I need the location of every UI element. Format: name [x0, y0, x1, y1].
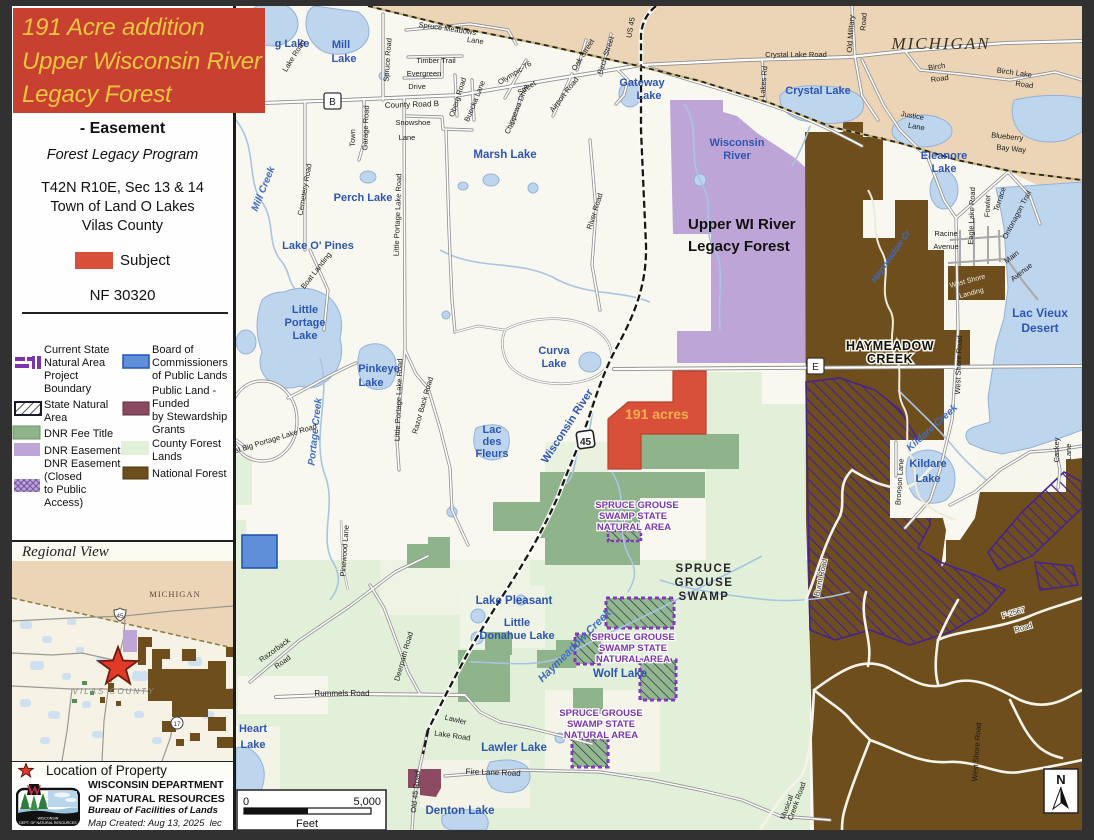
svg-text:Snowshoe: Snowshoe — [395, 118, 430, 127]
svg-text:Mill: Mill — [332, 39, 350, 51]
svg-text:Crystal Lake: Crystal Lake — [785, 85, 850, 97]
svg-text:Project: Project — [44, 370, 78, 382]
svg-text:Wisconsin: Wisconsin — [710, 137, 765, 149]
svg-text:Fowler: Fowler — [983, 194, 993, 217]
svg-text:SPRUCE GROUSE: SPRUCE GROUSE — [595, 500, 678, 511]
svg-text:Grants: Grants — [152, 424, 186, 436]
svg-text:Fire Lane Road: Fire Lane Road — [465, 767, 520, 778]
svg-text:Lake: Lake — [358, 377, 383, 389]
svg-text:Desert: Desert — [1021, 321, 1058, 335]
svg-text:45: 45 — [116, 613, 124, 620]
svg-text:Little: Little — [504, 617, 530, 629]
svg-text:NATURAL AREA: NATURAL AREA — [564, 730, 638, 741]
svg-text:Access): Access) — [44, 497, 83, 509]
svg-text:Rummels Road: Rummels Road — [314, 689, 369, 698]
svg-text:Heart: Heart — [239, 723, 267, 735]
svg-text:Lake: Lake — [915, 473, 940, 485]
svg-text:Wolf Lake: Wolf Lake — [593, 668, 647, 680]
svg-text:Little: Little — [292, 304, 318, 316]
svg-text:by Stewardship: by Stewardship — [152, 411, 227, 423]
svg-text:45: 45 — [580, 437, 592, 448]
svg-text:Eleanore: Eleanore — [921, 150, 967, 162]
svg-text:Lake: Lake — [292, 330, 317, 342]
svg-text:Natural Area: Natural Area — [44, 357, 106, 369]
svg-text:MICHIGAN: MICHIGAN — [890, 34, 990, 53]
svg-text:Lake: Lake — [240, 739, 265, 751]
svg-text:Current State: Current State — [44, 344, 109, 356]
svg-text:MICHIGAN: MICHIGAN — [149, 589, 200, 599]
svg-text:Board of: Board of — [152, 344, 195, 356]
svg-text:B: B — [329, 97, 336, 108]
svg-text:Donahue Lake: Donahue Lake — [479, 630, 554, 642]
svg-text:191 acres: 191 acres — [625, 406, 689, 422]
svg-text:Drive: Drive — [408, 82, 426, 91]
svg-text:to Public: to Public — [44, 484, 87, 496]
svg-text:Timber Trail: Timber Trail — [416, 56, 456, 65]
svg-text:Lake: Lake — [931, 163, 956, 175]
svg-text:Caskey: Caskey — [1052, 437, 1061, 462]
svg-text:Curva: Curva — [538, 345, 570, 357]
svg-text:Pinkeye: Pinkeye — [358, 363, 400, 375]
svg-text:Evergreen: Evergreen — [407, 69, 442, 78]
svg-text:Boundary: Boundary — [44, 383, 92, 395]
svg-text:Public Land -: Public Land - — [152, 385, 217, 397]
svg-text:0: 0 — [243, 796, 249, 808]
svg-text:Gateway: Gateway — [619, 77, 665, 89]
svg-text:CREEK: CREEK — [867, 352, 913, 366]
svg-text:Lac Vieux: Lac Vieux — [1012, 306, 1068, 320]
svg-text:Lac: Lac — [483, 424, 502, 436]
svg-text:State Natural: State Natural — [44, 399, 108, 411]
svg-text:Road: Road — [858, 13, 868, 32]
svg-text:Marsh Lake: Marsh Lake — [473, 149, 536, 161]
svg-text:HAYMEADOW: HAYMEADOW — [846, 339, 934, 353]
svg-text:Upper WI River: Upper WI River — [688, 216, 796, 233]
svg-text:SWAMP STATE: SWAMP STATE — [599, 643, 667, 654]
svg-text:Perch Lake: Perch Lake — [334, 192, 393, 204]
svg-text:Garage Road: Garage Road — [360, 105, 371, 150]
svg-text:Area: Area — [44, 412, 68, 424]
svg-text:Denton Lake: Denton Lake — [425, 805, 494, 817]
svg-text:Lane: Lane — [399, 133, 416, 142]
svg-text:des: des — [483, 436, 502, 448]
svg-text:Lake: Lake — [541, 358, 566, 370]
svg-text:Fleurs: Fleurs — [475, 448, 508, 460]
svg-text:SPRUCE: SPRUCE — [676, 563, 733, 575]
svg-text:Racine: Racine — [934, 229, 957, 238]
svg-text:DNR Easement: DNR Easement — [44, 445, 120, 457]
svg-text:Lake Pleasant: Lake Pleasant — [476, 595, 553, 607]
svg-text:VILAS COUNTY: VILAS COUNTY — [73, 687, 156, 696]
svg-text:Feet: Feet — [296, 818, 318, 830]
svg-text:DNR Easement: DNR Easement — [44, 458, 120, 470]
svg-text:DNR Fee Title: DNR Fee Title — [44, 428, 113, 440]
svg-text:WISCONSIN: WISCONSIN — [38, 817, 59, 821]
svg-text:River: River — [723, 150, 751, 162]
svg-text:N: N — [1056, 772, 1065, 787]
svg-text:Lane: Lane — [1064, 444, 1073, 461]
svg-text:County Road B: County Road B — [385, 99, 440, 110]
svg-text:5,000: 5,000 — [353, 796, 381, 808]
svg-text:GROUSE: GROUSE — [675, 577, 734, 589]
svg-text:Crystal Lake Road: Crystal Lake Road — [765, 50, 827, 59]
svg-text:Lands: Lands — [152, 451, 182, 463]
svg-text:SWAMP STATE: SWAMP STATE — [567, 719, 635, 730]
svg-text:Lake O' Pines: Lake O' Pines — [282, 240, 354, 252]
svg-text:Town: Town — [348, 129, 358, 147]
svg-text:of Public Lands: of Public Lands — [152, 370, 228, 382]
svg-text:SPRUCE GROUSE: SPRUCE GROUSE — [591, 632, 674, 643]
svg-text:Portage: Portage — [285, 317, 326, 329]
svg-text:SWAMP: SWAMP — [679, 591, 730, 603]
svg-text:SPRUCE GROUSE: SPRUCE GROUSE — [559, 708, 642, 719]
svg-text:Avenue: Avenue — [933, 242, 958, 251]
svg-text:E: E — [812, 362, 819, 373]
svg-text:(Closed: (Closed — [44, 471, 82, 483]
svg-text:Lake: Lake — [636, 90, 661, 102]
svg-text:Kildare: Kildare — [909, 458, 946, 470]
svg-text:SWAMP STATE: SWAMP STATE — [599, 511, 667, 522]
svg-text:NATURAL AREA: NATURAL AREA — [596, 654, 670, 665]
svg-text:Lawler Lake: Lawler Lake — [481, 742, 547, 754]
svg-text:National Forest: National Forest — [152, 468, 227, 480]
svg-text:17: 17 — [173, 721, 181, 728]
svg-text:Legacy Forest: Legacy Forest — [688, 238, 790, 255]
svg-text:NATURAL AREA: NATURAL AREA — [597, 522, 671, 533]
svg-text:Commissioners: Commissioners — [152, 357, 228, 369]
svg-text:Funded: Funded — [152, 398, 189, 410]
svg-text:County Forest: County Forest — [152, 438, 221, 450]
svg-text:Lake: Lake — [331, 53, 356, 65]
svg-text:DEPT. OF NATURAL RESOURCES: DEPT. OF NATURAL RESOURCES — [19, 821, 77, 825]
